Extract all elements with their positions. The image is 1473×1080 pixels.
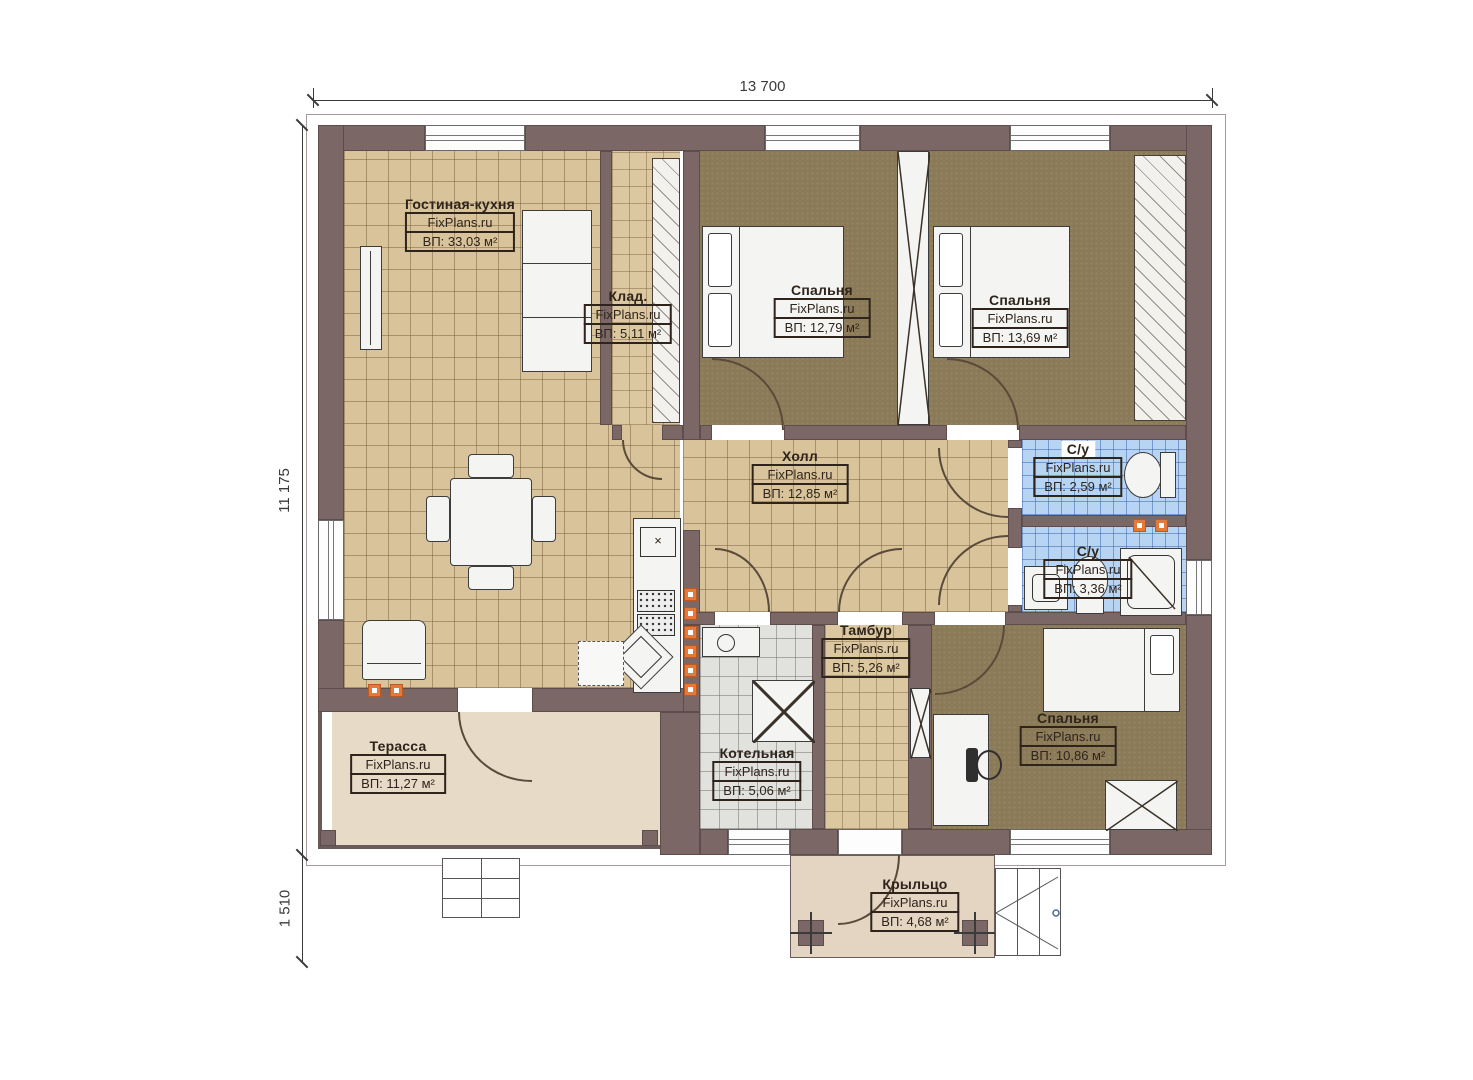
- terrace-edge: [318, 845, 660, 849]
- room-area: ВП: 4,68 м²: [870, 911, 959, 932]
- boiler: [752, 680, 814, 742]
- radiator-marker: [684, 607, 697, 620]
- wall-segment: [1008, 440, 1022, 448]
- room-watermark: FixPlans.ru: [712, 761, 801, 782]
- room-name: С/у: [1061, 441, 1095, 457]
- window: [1010, 125, 1110, 151]
- chair: [468, 454, 514, 478]
- wall-segment: [1008, 605, 1022, 612]
- room-watermark: FixPlans.ru: [774, 298, 871, 319]
- dimension-porch-height: 1 510: [276, 890, 293, 928]
- room-watermark: FixPlans.ru: [972, 308, 1069, 329]
- room-watermark: FixPlans.ru: [1020, 726, 1117, 747]
- window: [318, 520, 344, 620]
- room-label-terrace: Терасса FixPlans.ru ВП: 11,27 м²: [350, 738, 446, 794]
- room-label-bathroom-2: С/у FixPlans.ru ВП: 3,36 м²: [1043, 543, 1132, 599]
- radiator-marker: [368, 684, 381, 697]
- room-area: ВП: 11,27 м²: [350, 773, 446, 794]
- room-label-bedroom-2: Спальня FixPlans.ru ВП: 13,69 м²: [972, 292, 1069, 348]
- wall-segment: [860, 125, 1010, 151]
- floor-plan: ×: [0, 0, 1473, 1080]
- radiator-marker: [1133, 519, 1146, 532]
- room-watermark: FixPlans.ru: [350, 754, 446, 775]
- dimension-top-width: 13 700: [313, 78, 1212, 95]
- room-name: С/у: [1043, 543, 1132, 559]
- wall-segment: [1186, 125, 1212, 560]
- dimension-line-left: [302, 125, 303, 855]
- dimension-line-porch: [302, 855, 303, 962]
- terrace-post: [642, 830, 658, 846]
- room-area: ВП: 5,26 м²: [821, 657, 910, 678]
- chair: [426, 496, 450, 542]
- wall-segment: [318, 125, 344, 520]
- armchair: [362, 620, 426, 680]
- room-area: ВП: 5,11 м²: [584, 323, 672, 344]
- toilet: [1124, 452, 1162, 498]
- room-label-hall: Холл FixPlans.ru ВП: 12,85 м²: [752, 448, 849, 504]
- radiator-marker: [684, 664, 697, 677]
- window: [765, 125, 860, 151]
- room-name: Крыльцо: [870, 876, 959, 892]
- wall-segment: [902, 829, 1010, 855]
- room-label-bedroom-1: Спальня FixPlans.ru ВП: 12,79 м²: [774, 282, 871, 338]
- window: [728, 829, 790, 855]
- utility-sink: [702, 627, 760, 657]
- room-area: ВП: 33,03 м²: [405, 231, 515, 252]
- single-bed: [1043, 628, 1180, 712]
- radiator-marker: [390, 684, 403, 697]
- room-name: Котельная: [712, 745, 801, 761]
- radiator-marker: [1155, 519, 1168, 532]
- dining-table: [450, 478, 532, 566]
- chair: [532, 496, 556, 542]
- window: [425, 125, 525, 151]
- room-name: Клад.: [584, 288, 672, 304]
- wall-segment: [612, 425, 622, 440]
- wall-segment: [1110, 829, 1212, 855]
- extension-line: [1212, 88, 1213, 108]
- toilet-tank: [1076, 598, 1104, 614]
- wardrobe: [1134, 155, 1186, 421]
- post-axis: [810, 912, 812, 954]
- closet-shaft: [910, 688, 930, 758]
- wall-segment: [700, 425, 712, 440]
- closet-shaft: [897, 151, 929, 425]
- radiator-marker: [684, 683, 697, 696]
- wall-segment: [790, 829, 838, 855]
- dimension-line-top: [313, 100, 1212, 101]
- desk-chair: [976, 750, 1002, 780]
- room-watermark: FixPlans.ru: [1033, 457, 1122, 478]
- wardrobe: [1105, 780, 1177, 830]
- wall-segment: [660, 712, 700, 855]
- post-axis: [974, 912, 976, 954]
- room-label-bedroom-3: Спальня FixPlans.ru ВП: 10,86 м²: [1020, 710, 1117, 766]
- room-area: ВП: 12,85 м²: [752, 483, 849, 504]
- wall-segment: [1019, 425, 1186, 440]
- room-watermark: FixPlans.ru: [821, 638, 910, 659]
- room-label-living-kitchen: Гостиная-кухня FixPlans.ru ВП: 33,03 м²: [405, 196, 515, 252]
- room-area: ВП: 5,06 м²: [712, 780, 801, 801]
- shelf: [360, 246, 382, 350]
- chair: [468, 566, 514, 590]
- room-watermark: FixPlans.ru: [405, 212, 515, 233]
- room-label-storage: Клад. FixPlans.ru ВП: 5,11 м²: [584, 288, 672, 344]
- room-name: Холл: [752, 448, 849, 464]
- wall-segment: [700, 829, 728, 855]
- window: [1186, 560, 1212, 615]
- window: [1010, 829, 1110, 855]
- room-label-boiler-room: Котельная FixPlans.ru ВП: 5,06 м²: [712, 745, 801, 801]
- room-name: Терасса: [350, 738, 446, 754]
- porch-steps: [995, 868, 1061, 956]
- countertop: [578, 641, 624, 686]
- toilet-tank: [1160, 452, 1176, 498]
- room-area: ВП: 3,36 м²: [1043, 578, 1132, 599]
- room-area: ВП: 10,86 м²: [1020, 745, 1117, 766]
- dimension-left-height: 11 175: [276, 468, 293, 513]
- room-area: ВП: 2,59 м²: [1033, 476, 1122, 497]
- room-label-porch: Крыльцо FixPlans.ru ВП: 4,68 м²: [870, 876, 959, 932]
- room-label-bathroom-1: С/у FixPlans.ru ВП: 2,59 м²: [1033, 441, 1122, 497]
- room-name: Спальня: [972, 292, 1069, 308]
- room-name: Тамбур: [821, 622, 910, 638]
- room-area: ВП: 12,79 м²: [774, 317, 871, 338]
- room-watermark: FixPlans.ru: [584, 304, 672, 325]
- room-area: ВП: 13,69 м²: [972, 327, 1069, 348]
- terrace-post: [320, 830, 336, 846]
- radiator-marker: [684, 626, 697, 639]
- radiator-marker: [684, 645, 697, 658]
- room-watermark: FixPlans.ru: [752, 464, 849, 485]
- entrance-door: [838, 829, 902, 855]
- wall-segment: [662, 425, 683, 440]
- radiator-marker: [684, 588, 697, 601]
- room-name: Спальня: [1020, 710, 1117, 726]
- wall-segment: [525, 125, 765, 151]
- wall-segment: [683, 151, 700, 440]
- room-label-vestibule: Тамбур FixPlans.ru ВП: 5,26 м²: [821, 622, 910, 678]
- room-watermark: FixPlans.ru: [870, 892, 959, 913]
- room-watermark: FixPlans.ru: [1043, 559, 1132, 580]
- wall-segment: [1186, 615, 1212, 855]
- room-name: Спальня: [774, 282, 871, 298]
- wall-segment: [318, 688, 458, 712]
- terrace-steps: [442, 858, 520, 918]
- wall-segment: [784, 425, 947, 440]
- cabinet: [522, 210, 592, 372]
- room-name: Гостиная-кухня: [405, 196, 515, 212]
- terrace-edge: [318, 712, 322, 845]
- stove-burners: [637, 590, 675, 612]
- wall-segment: [1008, 508, 1022, 548]
